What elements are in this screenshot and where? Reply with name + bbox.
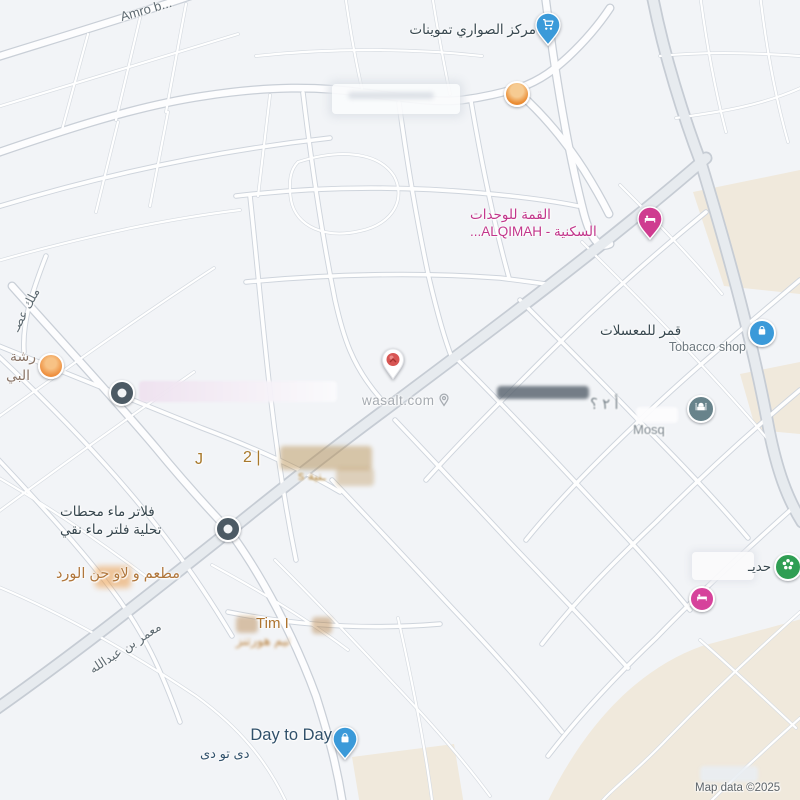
- blurred-label-bottom-right: [700, 766, 758, 782]
- poi-label-mosque: Mosq: [633, 422, 665, 437]
- poi-label-tim: Tim I: [256, 615, 289, 632]
- grocery-marker[interactable]: [535, 12, 561, 46]
- blurred-label-district: [280, 446, 372, 470]
- poi-label-alqimah[interactable]: القمة للوحدات السكنية - ALQIMAH...: [470, 206, 633, 240]
- hotel-marker[interactable]: [689, 586, 715, 612]
- poi-label-water-filters[interactable]: فلاتر ماء محطات تحلية فلتر ماء نقي: [60, 503, 216, 539]
- poi-sublabel-tim: تيم هورتنز: [236, 633, 290, 649]
- poi-label-workshop-2: البي: [0, 367, 30, 384]
- laundry-marker[interactable]: [109, 380, 135, 406]
- blurred-label-tim-left: [236, 616, 258, 633]
- shopping-bag-icon: [756, 324, 769, 342]
- water-filters-marker[interactable]: [215, 516, 241, 542]
- bed-icon: [643, 211, 657, 225]
- alqimah-line2: السكنية - ALQIMAH...: [470, 223, 633, 240]
- mosque-blur-frag: أ ٢ ؟: [590, 395, 619, 413]
- bed-icon: [696, 590, 709, 608]
- district-label-frag-2: 2 |: [243, 449, 261, 467]
- poi-label-tobacco[interactable]: قمر للمعسلات: [600, 322, 746, 340]
- dot-icon: [118, 389, 127, 398]
- workshop-marker[interactable]: [38, 353, 64, 379]
- restaurant-photo-marker[interactable]: [504, 81, 530, 107]
- map-attribution: Map data ©2025: [695, 782, 780, 794]
- blurred-label-tim-right: [312, 617, 332, 634]
- blurred-label-district-2: [336, 468, 374, 486]
- blurred-label-top: [332, 84, 460, 114]
- location-pin-icon: [439, 393, 449, 410]
- poi-sublabel-daytoday: دى تو دى: [200, 746, 322, 762]
- district-label-frag-j: J: [195, 451, 203, 469]
- water-filters-line1: فلاتر ماء محطات: [60, 503, 216, 521]
- poi-label-workshop-1: رشة: [0, 348, 36, 365]
- shopping-cart-icon: [541, 17, 555, 31]
- daytoday-marker[interactable]: [332, 726, 358, 760]
- alqimah-line1: القمة للوحدات: [470, 206, 633, 223]
- poi-label-grocery[interactable]: مركز الصواري تموينات: [426, 21, 536, 39]
- wasalt-watermark-text: wasalt.com: [362, 393, 435, 408]
- poi-label-park: حديـ: [748, 558, 771, 576]
- water-filters-line2: تحلية فلتر ماء نقي: [60, 521, 216, 539]
- park-marker[interactable]: [774, 553, 800, 581]
- flower-icon: [781, 558, 795, 577]
- wasalt-property-pin[interactable]: [381, 348, 405, 380]
- blurred-label-center-dark: [497, 386, 589, 399]
- mosque-marker[interactable]: [687, 395, 715, 423]
- shopping-bag-icon: [338, 731, 352, 745]
- blurred-label-mosque-white: [636, 407, 678, 423]
- blurred-label-top-marks: [348, 92, 434, 99]
- poi-label-restaurant: مطعم و لاو حن الورد: [18, 566, 218, 582]
- poi-sublabel-tobacco: Tobacco shop: [600, 340, 746, 354]
- tobacco-marker[interactable]: [748, 319, 776, 347]
- mosque-icon: [694, 400, 708, 419]
- poi-label-daytoday[interactable]: Day to Day: [200, 726, 332, 745]
- dot-icon: [224, 525, 233, 534]
- blurred-label-laundry: [139, 381, 337, 402]
- blurred-label-park: [692, 552, 754, 580]
- district-label-line2: ـنية s: [298, 468, 326, 483]
- map-canvas[interactable]: Amro b... ملك عصـ معمر بن عبدالله مركز ا…: [0, 0, 800, 800]
- alqimah-marker[interactable]: [637, 206, 663, 240]
- wasalt-watermark: wasalt.com: [362, 393, 449, 410]
